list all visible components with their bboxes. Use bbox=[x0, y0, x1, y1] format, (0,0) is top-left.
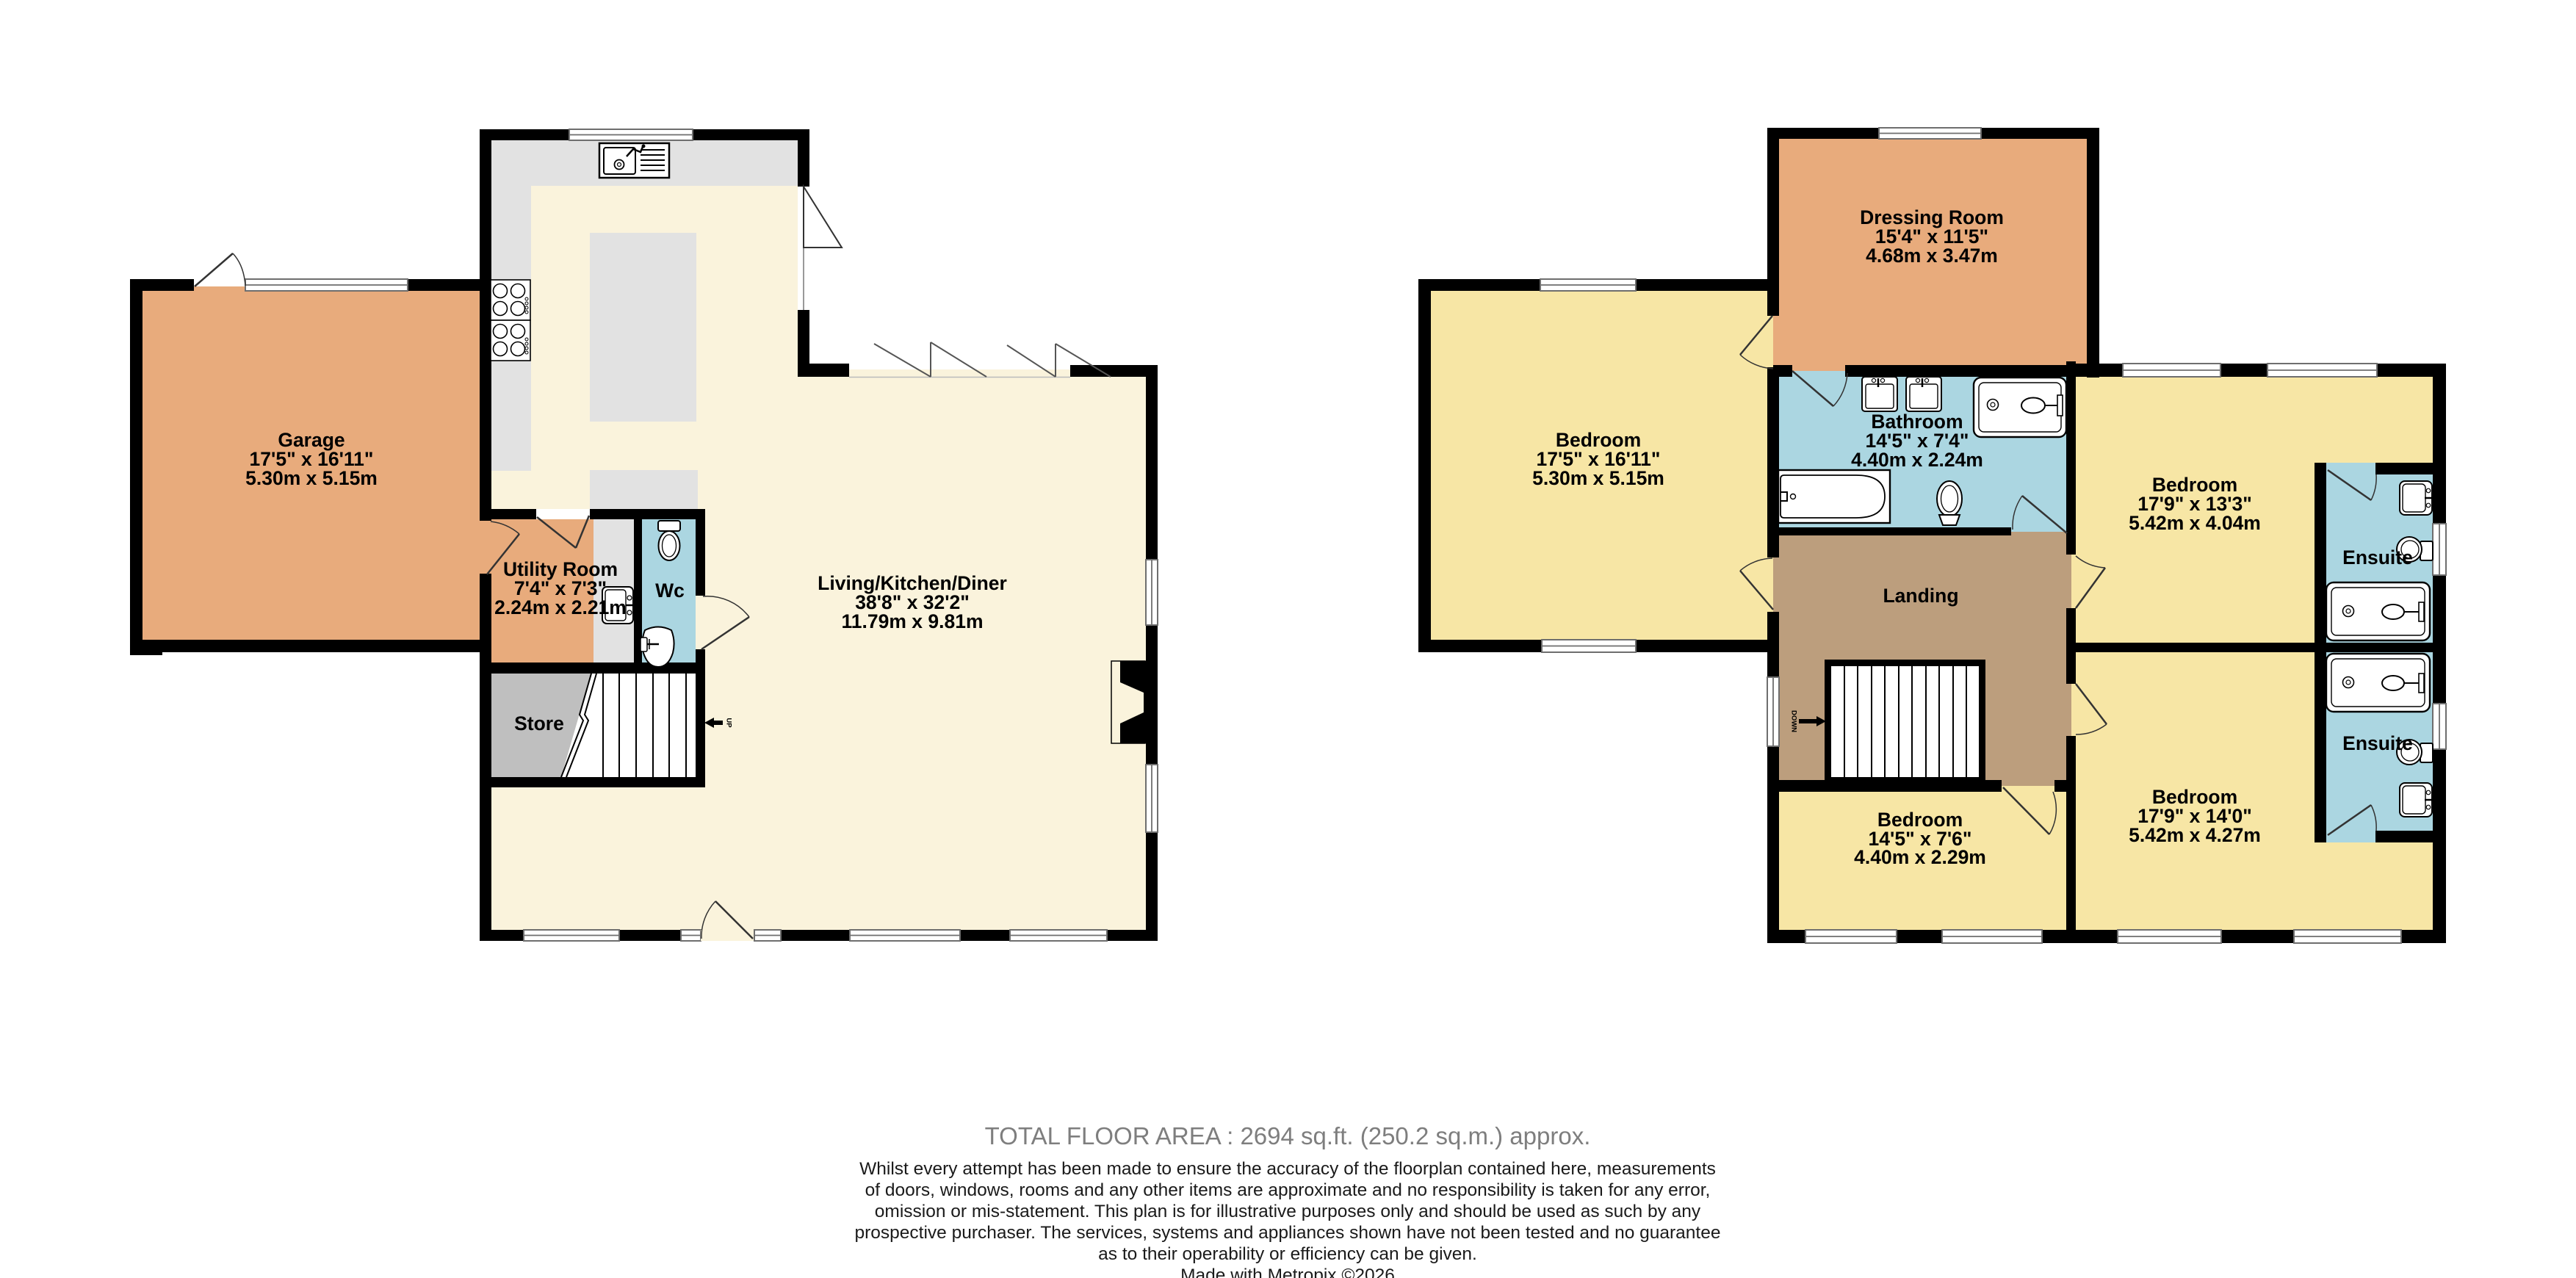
svg-text:4.68m x 3.47m: 4.68m x 3.47m bbox=[1866, 245, 1998, 267]
svg-text:Wc: Wc bbox=[655, 580, 685, 602]
svg-text:4.40m x 2.24m: 4.40m x 2.24m bbox=[1851, 449, 1983, 471]
svg-text:5.30m x 5.15m: 5.30m x 5.15m bbox=[1532, 467, 1664, 489]
svg-text:of doors, windows, rooms and a: of doors, windows, rooms and any other i… bbox=[865, 1180, 1711, 1200]
svg-text:Made with Metropix ©2026: Made with Metropix ©2026 bbox=[1180, 1266, 1395, 1278]
svg-text:Ensuite: Ensuite bbox=[2342, 732, 2413, 754]
svg-text:UP: UP bbox=[724, 718, 732, 728]
svg-text:Landing: Landing bbox=[1883, 585, 1958, 607]
svg-text:Store: Store bbox=[514, 712, 564, 734]
svg-text:Whilst every attempt has been: Whilst every attempt has been made to en… bbox=[859, 1159, 1716, 1179]
svg-text:Ensuite: Ensuite bbox=[2342, 546, 2413, 568]
svg-text:5.30m x 5.15m: 5.30m x 5.15m bbox=[245, 467, 378, 489]
svg-text:5.42m x 4.27m: 5.42m x 4.27m bbox=[2129, 824, 2261, 846]
svg-text:TOTAL FLOOR AREA : 2694 sq.ft.: TOTAL FLOOR AREA : 2694 sq.ft. (250.2 sq… bbox=[985, 1122, 1591, 1149]
svg-text:4.40m x 2.29m: 4.40m x 2.29m bbox=[1854, 846, 1986, 868]
svg-text:as to their operability or eff: as to their operability or efficiency ca… bbox=[1098, 1244, 1477, 1264]
svg-text:5.42m x 4.04m: 5.42m x 4.04m bbox=[2129, 512, 2261, 534]
svg-text:omission or mis-statement. Thi: omission or mis-statement. This plan is … bbox=[875, 1202, 1701, 1221]
svg-text:prospective purchaser. The ser: prospective purchaser. The services, sys… bbox=[854, 1223, 1720, 1243]
svg-text:DOWN: DOWN bbox=[1789, 710, 1797, 732]
svg-text:2.24m x 2.21m: 2.24m x 2.21m bbox=[494, 596, 627, 618]
svg-text:11.79m x 9.81m: 11.79m x 9.81m bbox=[841, 610, 983, 632]
